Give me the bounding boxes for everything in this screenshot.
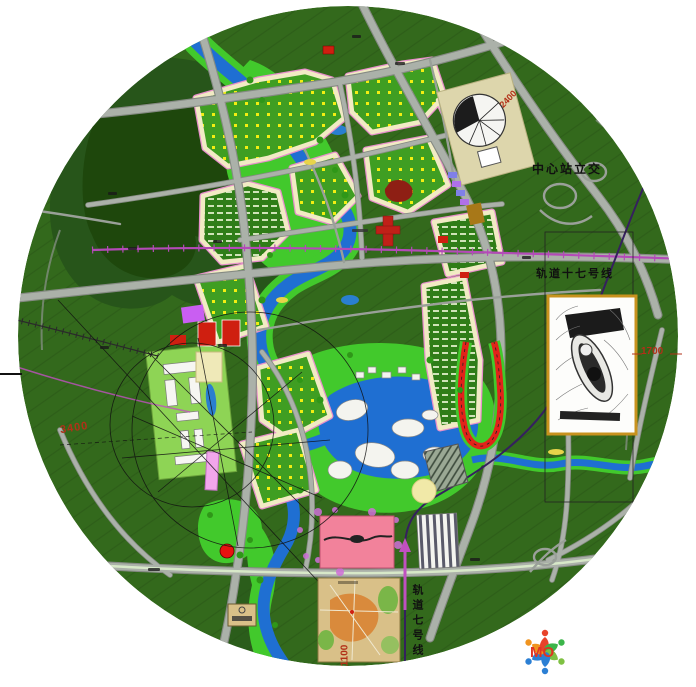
logo-text: MO	[530, 644, 554, 661]
commercial-rows	[417, 513, 460, 569]
label-central-station-interchange: 中心站立交	[532, 160, 602, 177]
transit-station-block	[181, 305, 205, 324]
company-logo: MO	[503, 622, 589, 686]
plaza-circle	[412, 479, 436, 503]
campus	[146, 344, 237, 479]
city-inset-map	[318, 578, 400, 662]
label-rail-line-7: 轨道七号线	[409, 584, 425, 676]
label-dimension-1100: 1100	[339, 645, 350, 667]
sketch-inset	[548, 296, 636, 434]
map-circle-content	[8, 4, 690, 676]
sign-plaque	[228, 604, 256, 626]
edge-tick-line	[0, 373, 22, 375]
masterplan-map: 中心站立交 轨道十七号线 轨道七号线 1700 1100 3400 2400 M…	[0, 0, 696, 687]
label-dimension-1700: 1700	[641, 346, 663, 357]
map-canvas	[0, 0, 696, 687]
label-rail-line-17: 轨道十七号线	[536, 265, 614, 281]
